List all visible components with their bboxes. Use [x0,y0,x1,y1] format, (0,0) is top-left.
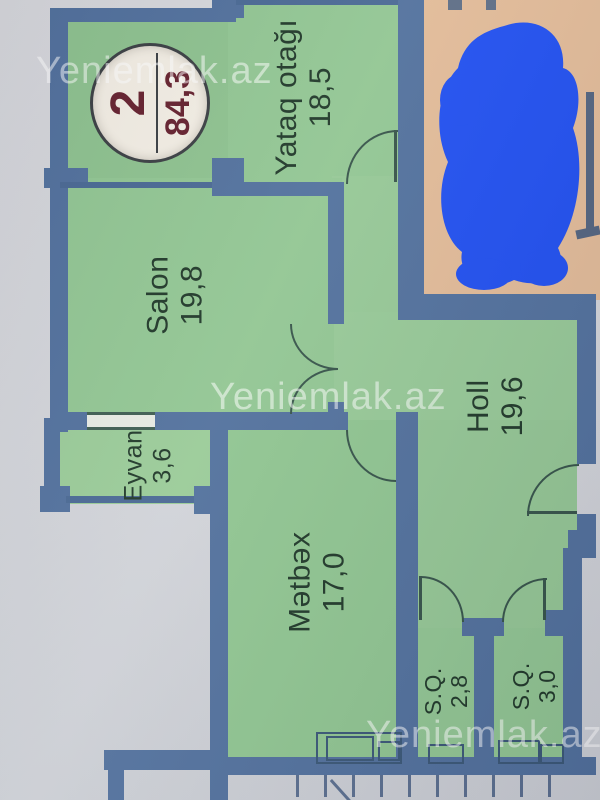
apartment-total-area: 84,3 [161,70,195,136]
wall [398,294,596,320]
bath-fixture [540,744,564,764]
apartment-number: 2 [105,90,153,117]
wall [328,182,344,324]
wall [212,182,344,196]
adjacent-wall-mark [586,92,594,234]
kitchen-sink [326,736,374,761]
wall [577,316,596,464]
window [87,412,155,430]
wall [66,496,198,503]
wall [210,412,228,800]
wall [545,610,567,636]
wall [236,0,424,5]
marker-scribble [426,10,590,294]
wall [104,750,212,770]
wall [108,770,124,800]
wall [154,412,348,430]
bath-fixture [428,744,464,764]
apartment-badge: 2 84,3 [90,43,210,163]
adjacent-wall-notch [486,0,496,10]
wall [44,418,60,496]
apartment-badge-content: 2 84,3 [105,53,195,153]
wall [396,412,418,775]
floor-plan-photo: 2 84,3 Yataq otağı 18,5 Salon 19,8 Holl … [0,0,600,800]
bath-fixture [498,740,540,764]
room-eyvan [50,420,210,504]
badge-divider-line [156,53,158,153]
kitchen-sink [378,741,400,761]
wall [50,8,236,22]
wall [194,486,220,514]
wall [398,0,424,320]
wall [563,548,582,775]
wall [60,182,216,188]
wall [50,8,68,432]
adjacent-wall-notch [448,0,462,10]
room-holl [334,312,586,430]
wall [474,618,494,775]
